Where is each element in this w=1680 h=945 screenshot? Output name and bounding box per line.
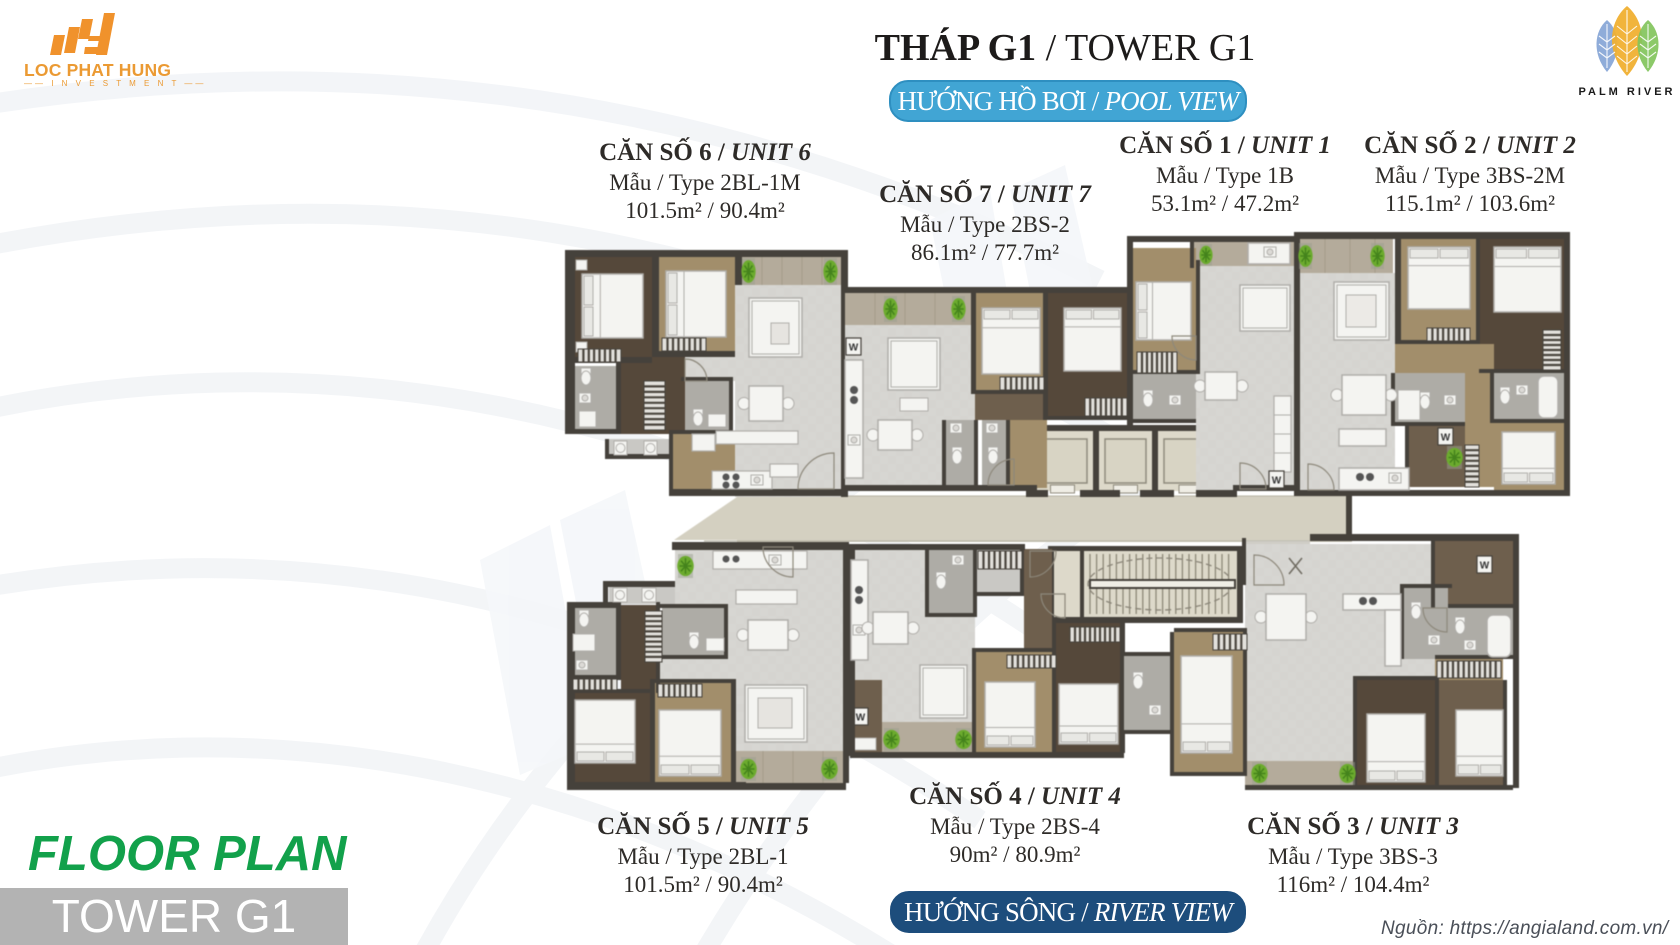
svg-text:W: W [849,343,859,354]
svg-text:W: W [1441,433,1451,444]
svg-text:PALM RIVER: PALM RIVER [1578,86,1675,98]
svg-text:W: W [856,713,866,724]
svg-text:W: W [1480,561,1490,572]
svg-text:W: W [1272,476,1282,487]
